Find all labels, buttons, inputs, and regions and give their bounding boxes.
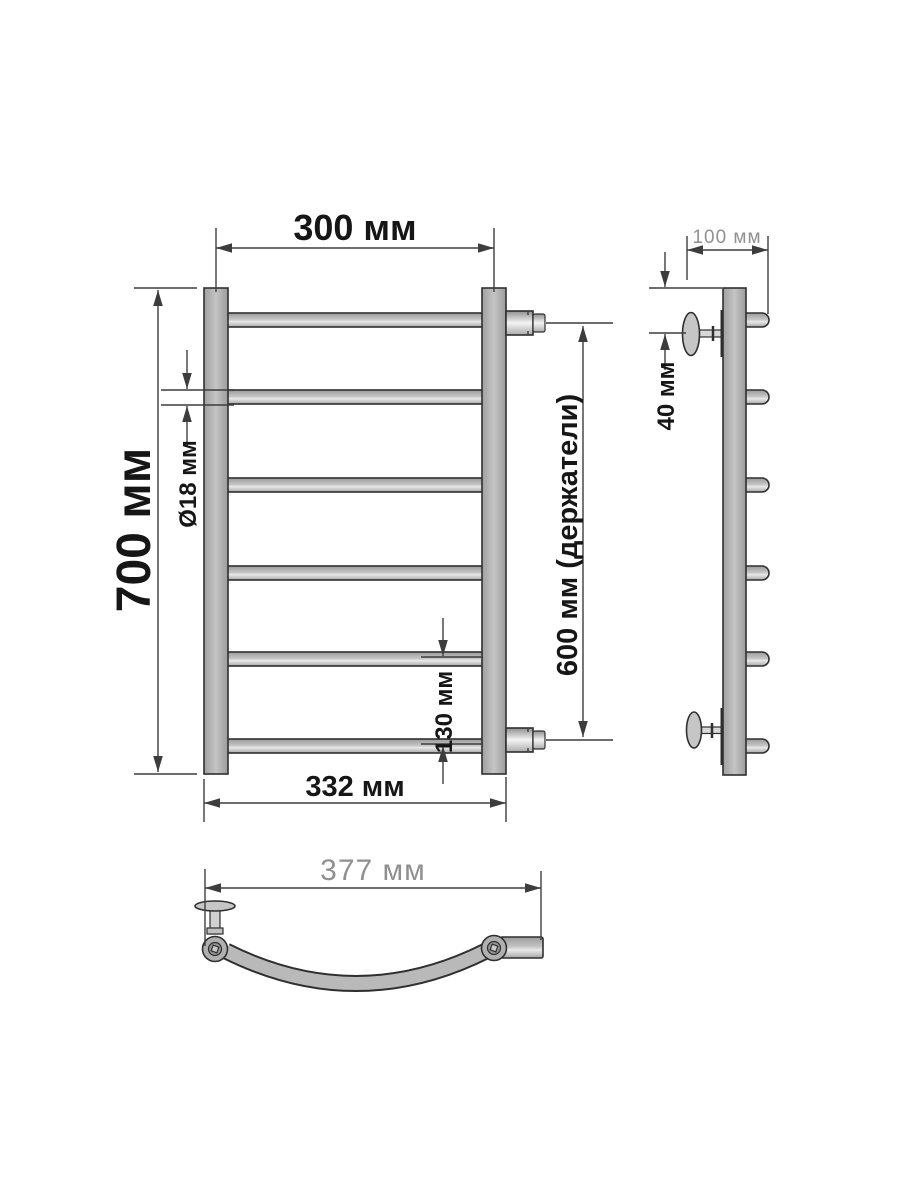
right-post	[482, 288, 506, 774]
side-bottom-bracket	[687, 708, 723, 765]
dim-height: 700 мм	[108, 288, 197, 774]
top-bracket-plan	[195, 901, 235, 934]
wall-flange-bottom	[687, 712, 702, 748]
towel-rail-drawing: 300 мм 700 мм Ø18 мм 600 мм (держатели)	[0, 0, 900, 1200]
side-view	[683, 288, 770, 775]
left-hub	[203, 937, 228, 962]
left-post	[204, 288, 228, 774]
wall-flange-top	[683, 313, 700, 356]
side-top-bracket	[683, 310, 723, 357]
rung-5	[226, 652, 484, 666]
dim-tube-diameter-label: Ø18 мм	[175, 440, 202, 528]
drawing-canvas: 300 мм 700 мм Ø18 мм 600 мм (держатели)	[0, 0, 900, 1200]
rung-2	[226, 390, 484, 404]
bottom-pipe-fitting	[506, 728, 545, 752]
rung-1	[226, 313, 484, 327]
top-pipe-fitting	[506, 311, 545, 335]
dim-arc-width-label: 377 мм	[320, 854, 426, 887]
rung-4	[226, 566, 484, 580]
dim-holders-span: 600 мм (держатели)	[546, 323, 613, 740]
dim-height-label: 700 мм	[108, 448, 161, 612]
front-view	[204, 288, 545, 774]
dim-bracket-offset-label: 40 мм	[653, 362, 680, 431]
right-hub	[482, 936, 507, 961]
dim-holders-span-label: 600 мм (держатели)	[552, 394, 584, 676]
dim-bottom-width: 332 мм	[204, 771, 506, 822]
side-post	[723, 288, 746, 775]
dim-top-width-label: 300 мм	[293, 207, 416, 248]
dim-lower-rung-gap-label: 130 мм	[431, 671, 458, 753]
wall-flange-plan	[195, 901, 235, 911]
dim-arc-width: 377 мм	[205, 854, 541, 946]
dim-depth-label: 100 мм	[692, 227, 761, 248]
dim-lower-rung-gap: 130 мм	[421, 618, 483, 784]
curved-rung	[226, 951, 486, 984]
dim-bottom-width-label: 332 мм	[305, 771, 404, 803]
dim-top-width: 300 мм	[216, 207, 494, 292]
rung-3	[226, 478, 484, 492]
top-view	[195, 901, 543, 984]
